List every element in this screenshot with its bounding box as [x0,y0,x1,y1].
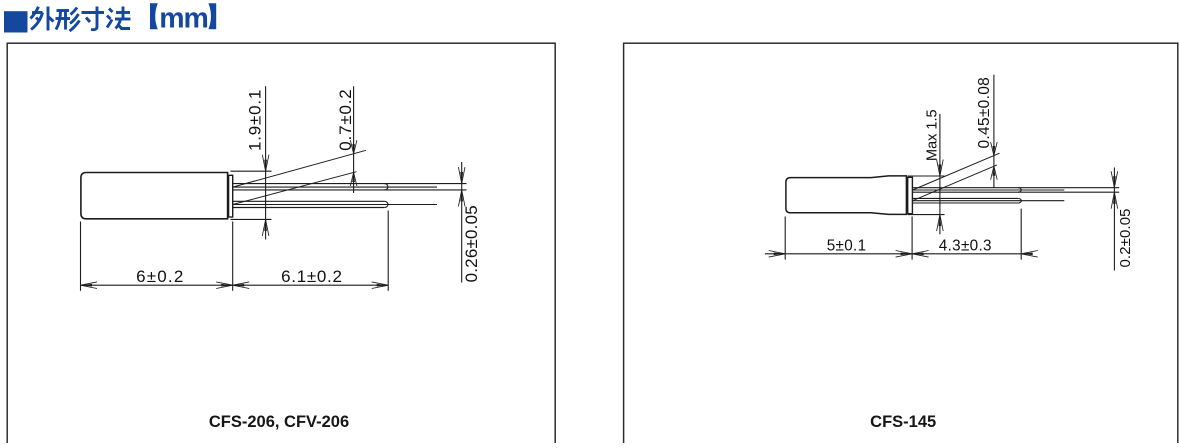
svg-text:mm: mm [159,2,207,34]
svg-text:Max 1.5: Max 1.5 [925,109,941,161]
svg-text:6±0.2: 6±0.2 [136,267,184,286]
svg-text:4.3±0.3: 4.3±0.3 [939,237,992,254]
svg-text:0.2±0.05: 0.2±0.05 [1118,208,1134,267]
svg-text:0.7±0.2: 0.7±0.2 [336,88,355,150]
svg-text:0.26±0.05: 0.26±0.05 [462,205,481,282]
svg-text:6.1±0.2: 6.1±0.2 [281,267,343,286]
svg-text:CFS-206, CFV-206: CFS-206, CFV-206 [209,413,349,431]
svg-text:5±0.1: 5±0.1 [827,237,867,254]
svg-text:1.9±0.1: 1.9±0.1 [245,89,264,151]
svg-text:CFS-145: CFS-145 [870,413,936,431]
svg-text:0.45±0.08: 0.45±0.08 [976,77,993,149]
